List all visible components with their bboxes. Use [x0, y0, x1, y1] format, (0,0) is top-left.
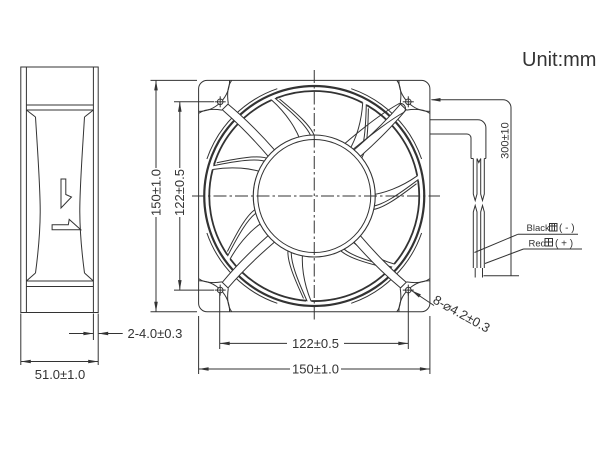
svg-text:2-4.0±0.3: 2-4.0±0.3	[128, 326, 183, 341]
svg-text:( - ): ( - )	[559, 223, 575, 234]
svg-text:150±1.0: 150±1.0	[292, 362, 339, 377]
svg-text:Red: Red	[529, 239, 546, 250]
svg-text:51.0±1.0: 51.0±1.0	[35, 367, 86, 382]
svg-text:122±0.5: 122±0.5	[292, 336, 339, 351]
svg-text:( + ): ( + )	[555, 239, 573, 250]
svg-text:Black: Black	[527, 223, 550, 234]
svg-text:Unit:mm: Unit:mm	[522, 49, 596, 71]
svg-text:150±1.0: 150±1.0	[149, 169, 164, 216]
svg-text:300±10: 300±10	[500, 122, 512, 159]
svg-text:122±0.5: 122±0.5	[172, 169, 187, 216]
